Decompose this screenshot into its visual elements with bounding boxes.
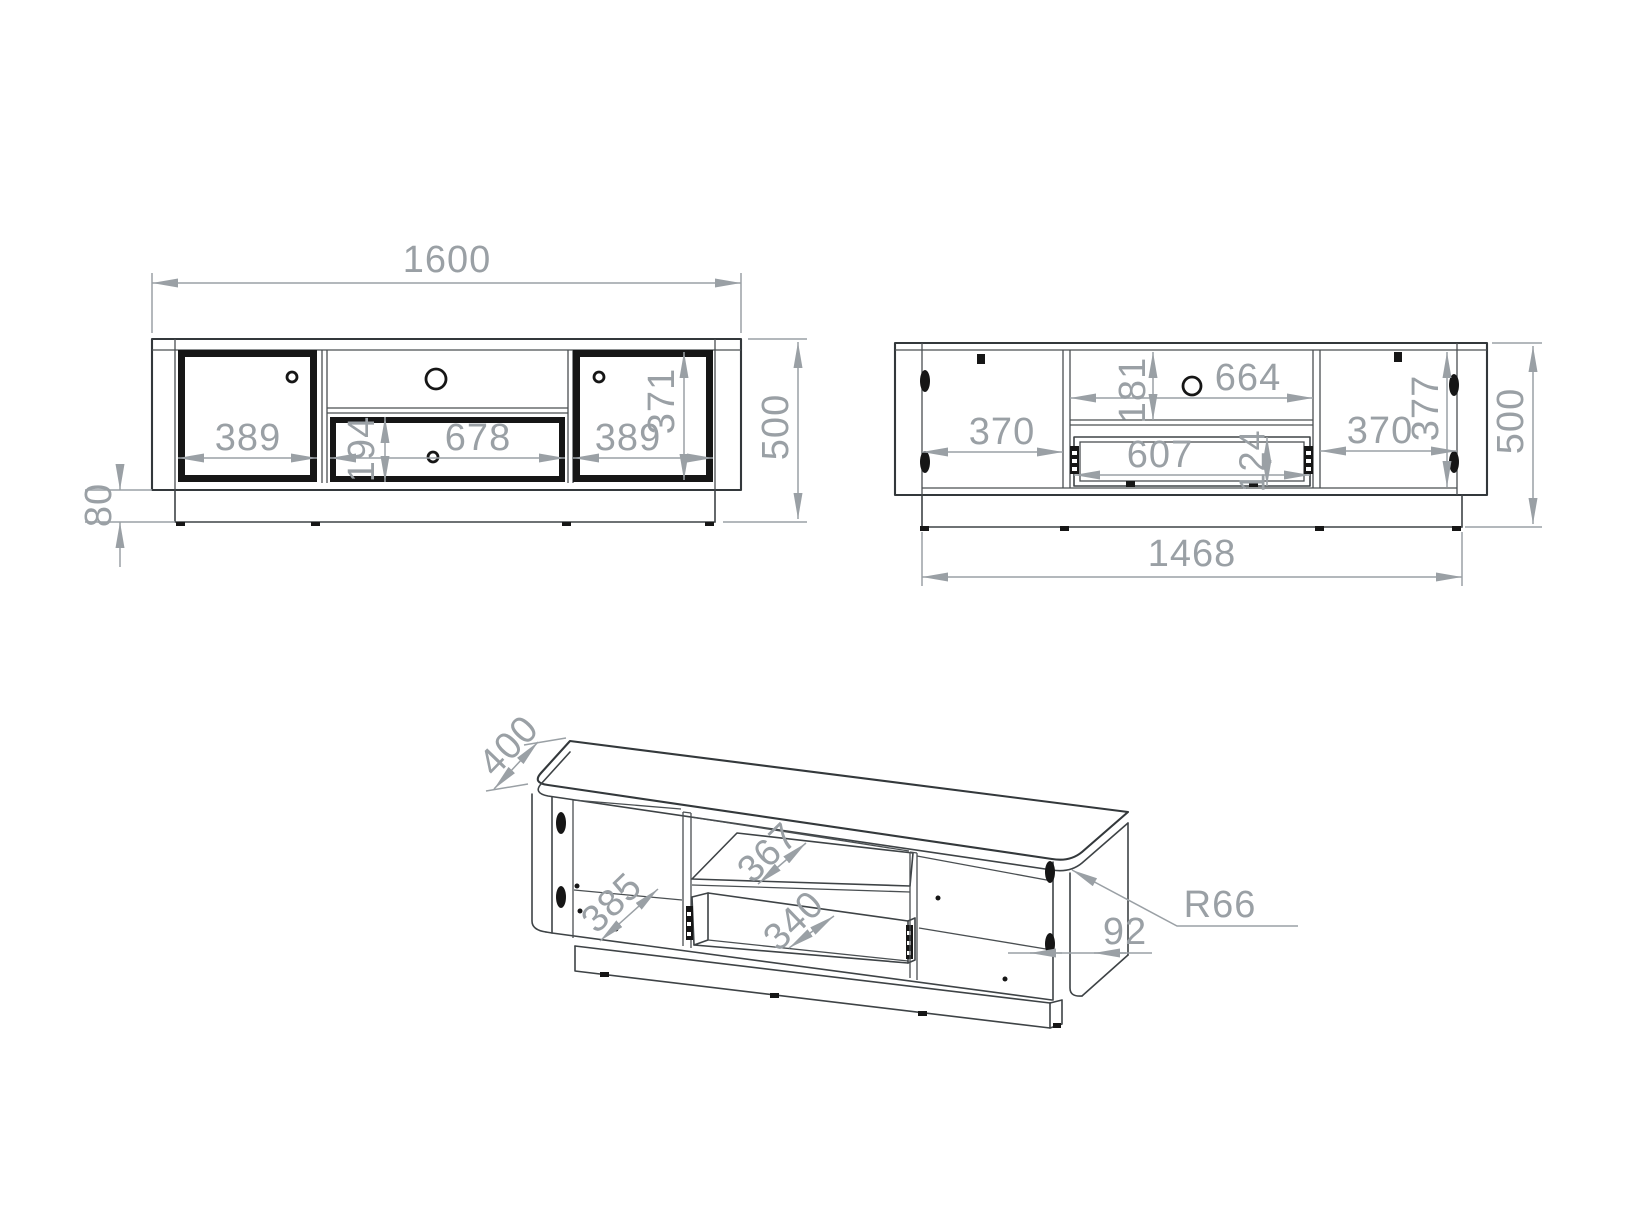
dim-back-total-height: 500: [1490, 388, 1532, 454]
dim-iso-depth: 400: [471, 708, 547, 785]
front-view: 1600 389 678 389 194 371 500 80: [78, 239, 807, 567]
dim-back-base-width: 1468: [1148, 533, 1237, 575]
iso-right-end: [1070, 873, 1082, 996]
right-door-knob: [594, 372, 604, 382]
back-view: 370 664 181 607 124 370 377 500 1468: [895, 343, 1542, 586]
dim-iso-drawer-depth: 340: [756, 883, 833, 959]
iso-top-panel: [538, 741, 1128, 860]
dim-back-left-opening: 370: [969, 411, 1035, 453]
hinge-plate-left: [977, 354, 985, 364]
dim-front-total-width: 1600: [403, 239, 492, 281]
dim-front-total-height: 500: [755, 394, 797, 460]
dim-back-right-opening: 370: [1347, 410, 1413, 452]
drawer-knob: [428, 452, 438, 462]
isometric-view: 400 385 367 340 R66 92: [471, 708, 1298, 1028]
dim-iso-interior-depth: 385: [574, 865, 651, 941]
dim-iso-corner-radius: R66: [1184, 884, 1257, 926]
dim-iso-shelf-depth: 367: [730, 815, 807, 891]
dim-back-niche-width: 664: [1215, 357, 1281, 399]
dim-back-interior-height: 377: [1405, 375, 1447, 441]
dim-front-drawer-height: 194: [341, 416, 383, 482]
dim-back-drawer-box-height: 124: [1232, 429, 1273, 492]
cable-hole-back: [1183, 377, 1201, 395]
drawing-sheet: 1600 389 678 389 194 371 500 80: [0, 0, 1637, 1227]
dim-front-door-height: 371: [641, 368, 683, 434]
dim-front-drawer-width: 678: [445, 417, 511, 459]
left-door-knob: [287, 372, 297, 382]
iso-plinth: [575, 946, 1062, 1028]
hinge-plate-right: [1394, 352, 1402, 362]
technical-drawing: 1600 389 678 389 194 371 500 80: [0, 0, 1637, 1227]
dim-back-niche-height: 181: [1112, 357, 1154, 423]
dim-back-drawer-box-width: 607: [1127, 434, 1193, 476]
dim-front-left-door: 389: [215, 417, 281, 459]
dim-front-plinth-height: 80: [78, 483, 120, 527]
iso-left-end: [532, 794, 546, 932]
cable-hole-front: [426, 369, 446, 389]
dim-iso-side-thickness: 92: [1103, 911, 1147, 953]
